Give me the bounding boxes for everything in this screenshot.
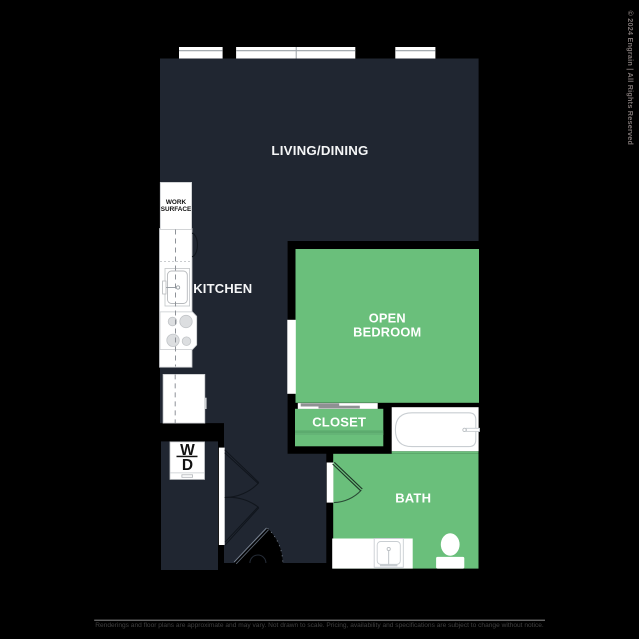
svg-text:SURFACE: SURFACE: [161, 206, 192, 213]
svg-text:BEDROOM: BEDROOM: [353, 325, 421, 340]
svg-text:KITCHEN: KITCHEN: [193, 281, 252, 296]
svg-text:BATH: BATH: [395, 490, 431, 505]
svg-text:D: D: [182, 457, 193, 474]
svg-text:CLOSET: CLOSET: [312, 414, 366, 429]
svg-text:Renderings and floor plans are: Renderings and floor plans are approxima…: [95, 622, 544, 629]
svg-text:© 2024 Engrain | All Rights Re: © 2024 Engrain | All Rights Reserved: [626, 11, 635, 146]
svg-text:LIVING/DINING: LIVING/DINING: [271, 143, 368, 158]
svg-text:WORK: WORK: [166, 199, 187, 206]
svg-text:OPEN: OPEN: [369, 311, 406, 326]
